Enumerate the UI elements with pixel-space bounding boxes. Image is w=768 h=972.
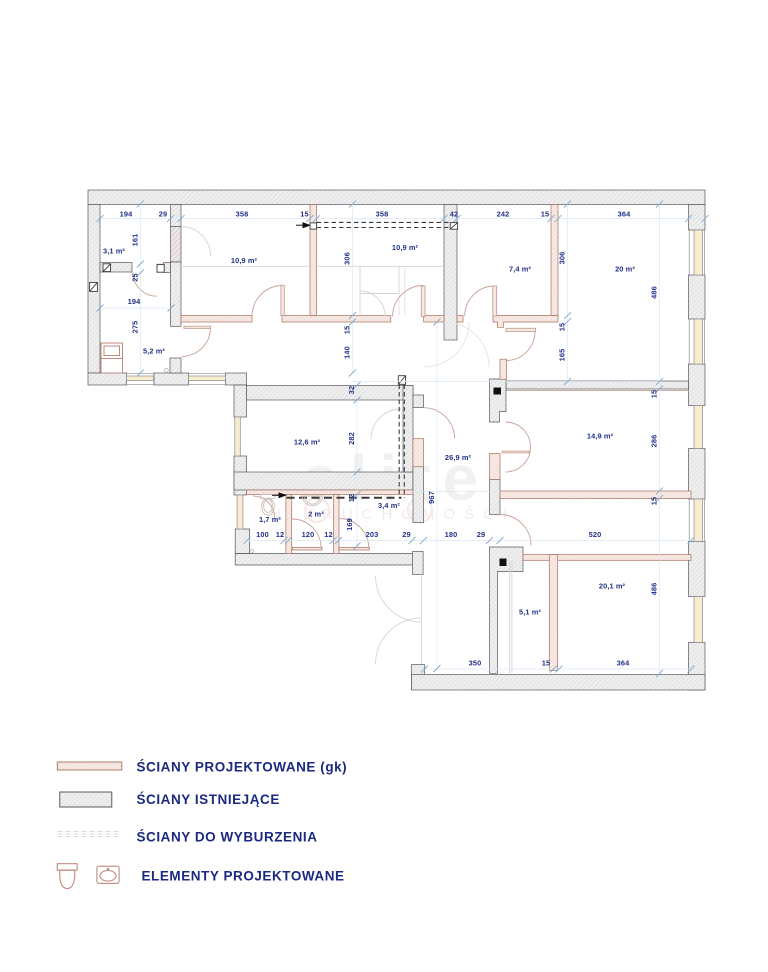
svg-text:120: 120 [302, 530, 315, 539]
svg-text:ELEMENTY PROJEKTOWANE: ELEMENTY PROJEKTOWANE [142, 869, 345, 884]
svg-text:ŚCIANY DO WYBURZENIA: ŚCIANY DO WYBURZENIA [137, 830, 318, 845]
svg-text:194: 194 [120, 209, 133, 218]
svg-text:7,4 m²: 7,4 m² [509, 265, 531, 274]
svg-text:15: 15 [343, 326, 352, 334]
svg-text:10,9 m²: 10,9 m² [231, 256, 258, 265]
svg-text:12: 12 [276, 530, 284, 539]
svg-text:306: 306 [343, 252, 352, 265]
svg-text:282: 282 [347, 432, 356, 445]
svg-text:364: 364 [618, 209, 631, 218]
svg-text:358: 358 [376, 209, 389, 218]
svg-text:350: 350 [469, 659, 482, 668]
svg-text:967: 967 [427, 491, 436, 504]
svg-text:358: 358 [236, 209, 249, 218]
svg-text:486: 486 [650, 286, 659, 299]
svg-text:203: 203 [366, 530, 379, 539]
svg-text:2 m²: 2 m² [308, 510, 324, 519]
svg-text:1,7 m²: 1,7 m² [259, 515, 281, 524]
svg-text:165: 165 [558, 349, 567, 362]
svg-text:29: 29 [159, 209, 167, 218]
svg-text:286: 286 [650, 435, 659, 448]
svg-text:306: 306 [558, 252, 567, 265]
svg-text:100: 100 [256, 530, 269, 539]
svg-text:5,2 m²: 5,2 m² [143, 347, 165, 356]
svg-text:15: 15 [650, 390, 659, 398]
svg-text:15: 15 [650, 497, 659, 505]
svg-text:12: 12 [324, 530, 332, 539]
svg-text:29: 29 [402, 530, 410, 539]
svg-text:140: 140 [343, 346, 352, 359]
svg-text:26,9 m²: 26,9 m² [445, 453, 472, 462]
svg-text:12: 12 [347, 494, 356, 502]
svg-text:520: 520 [589, 530, 602, 539]
svg-text:242: 242 [497, 209, 510, 218]
svg-text:29: 29 [477, 530, 485, 539]
svg-text:ŚCIANY PROJEKTOWANE (gk): ŚCIANY PROJEKTOWANE (gk) [137, 760, 348, 775]
svg-text:3,4 m²: 3,4 m² [378, 501, 400, 510]
svg-text:10,9 m²: 10,9 m² [392, 243, 419, 252]
svg-text:15: 15 [541, 209, 549, 218]
svg-text:12,6 m²: 12,6 m² [294, 438, 321, 447]
svg-text:32: 32 [347, 386, 356, 394]
svg-text:20 m²: 20 m² [615, 265, 635, 274]
svg-text:15: 15 [542, 659, 550, 668]
svg-text:275: 275 [131, 321, 140, 334]
svg-text:364: 364 [617, 659, 630, 668]
svg-text:194: 194 [128, 297, 141, 306]
svg-text:486: 486 [650, 583, 659, 596]
svg-text:5,1 m²: 5,1 m² [519, 608, 541, 617]
svg-text:20,1 m²: 20,1 m² [599, 582, 626, 591]
svg-text:42: 42 [450, 209, 458, 218]
svg-text:15: 15 [300, 209, 308, 218]
svg-text:169: 169 [345, 518, 354, 531]
svg-text:161: 161 [131, 234, 140, 247]
svg-text:15: 15 [558, 323, 567, 331]
svg-text:3,1 m²: 3,1 m² [103, 247, 125, 256]
svg-text:14,9 m²: 14,9 m² [587, 432, 614, 441]
svg-text:ŚCIANY ISTNIEJĄCE: ŚCIANY ISTNIEJĄCE [137, 792, 280, 807]
svg-text:180: 180 [445, 530, 458, 539]
svg-text:25: 25 [131, 273, 140, 281]
